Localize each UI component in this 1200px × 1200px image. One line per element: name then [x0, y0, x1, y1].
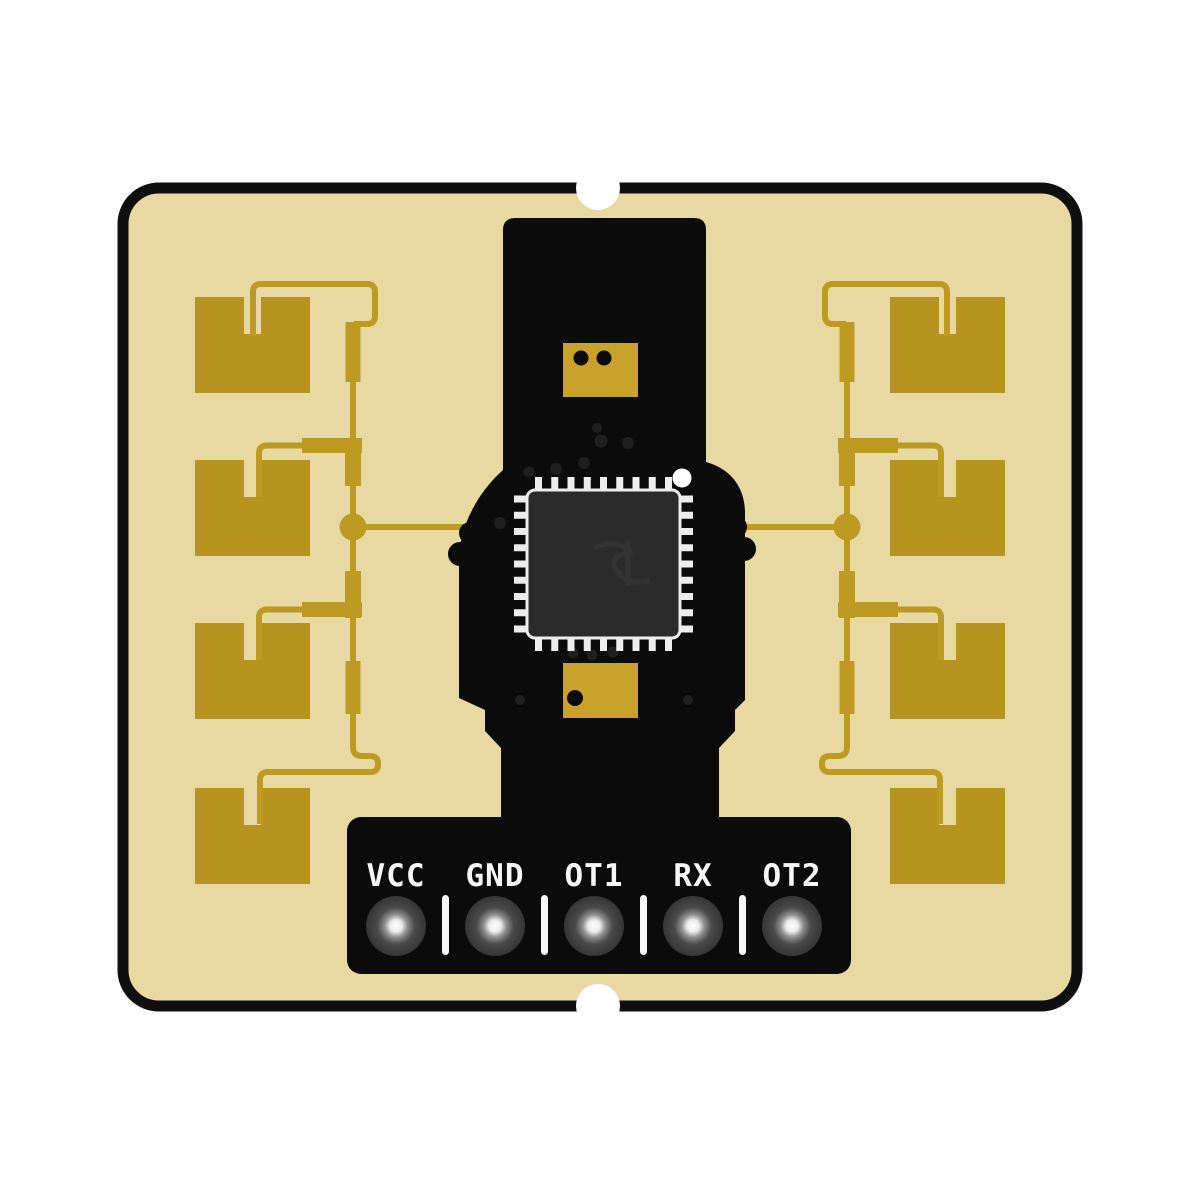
- pin-pad-gnd: [465, 896, 525, 956]
- pin-separator: [442, 895, 449, 955]
- pin-label-rx: RX: [673, 858, 712, 894]
- pin-separator: [541, 895, 548, 955]
- pin-label-ot2: OT2: [763, 858, 822, 894]
- pin-separator: [739, 895, 746, 955]
- header-block: VCC GND OT1 RX OT2: [347, 817, 851, 974]
- pin-label-ot1: OT1: [565, 858, 624, 894]
- bottom-notch: [576, 984, 620, 1028]
- pin-pad-rx: [663, 896, 723, 956]
- chip-package-body: [527, 490, 680, 638]
- pin-label-gnd: GND: [466, 858, 525, 894]
- component-pad-bottom: [563, 663, 638, 718]
- pin-pad-vcc: [366, 896, 426, 956]
- pin-separator: [640, 895, 647, 955]
- pin1-marker-dot: [673, 469, 692, 488]
- top-notch: [576, 166, 620, 210]
- pin-pad-ot1: [564, 896, 624, 956]
- pcb-radar-module-photo: VCC GND OT1 RX OT2: [0, 0, 1200, 1200]
- radar-chip: [521, 469, 692, 645]
- pin-label-vcc: VCC: [367, 858, 426, 894]
- pin-pad-ot2: [762, 896, 822, 956]
- component-pad-top: [563, 343, 638, 397]
